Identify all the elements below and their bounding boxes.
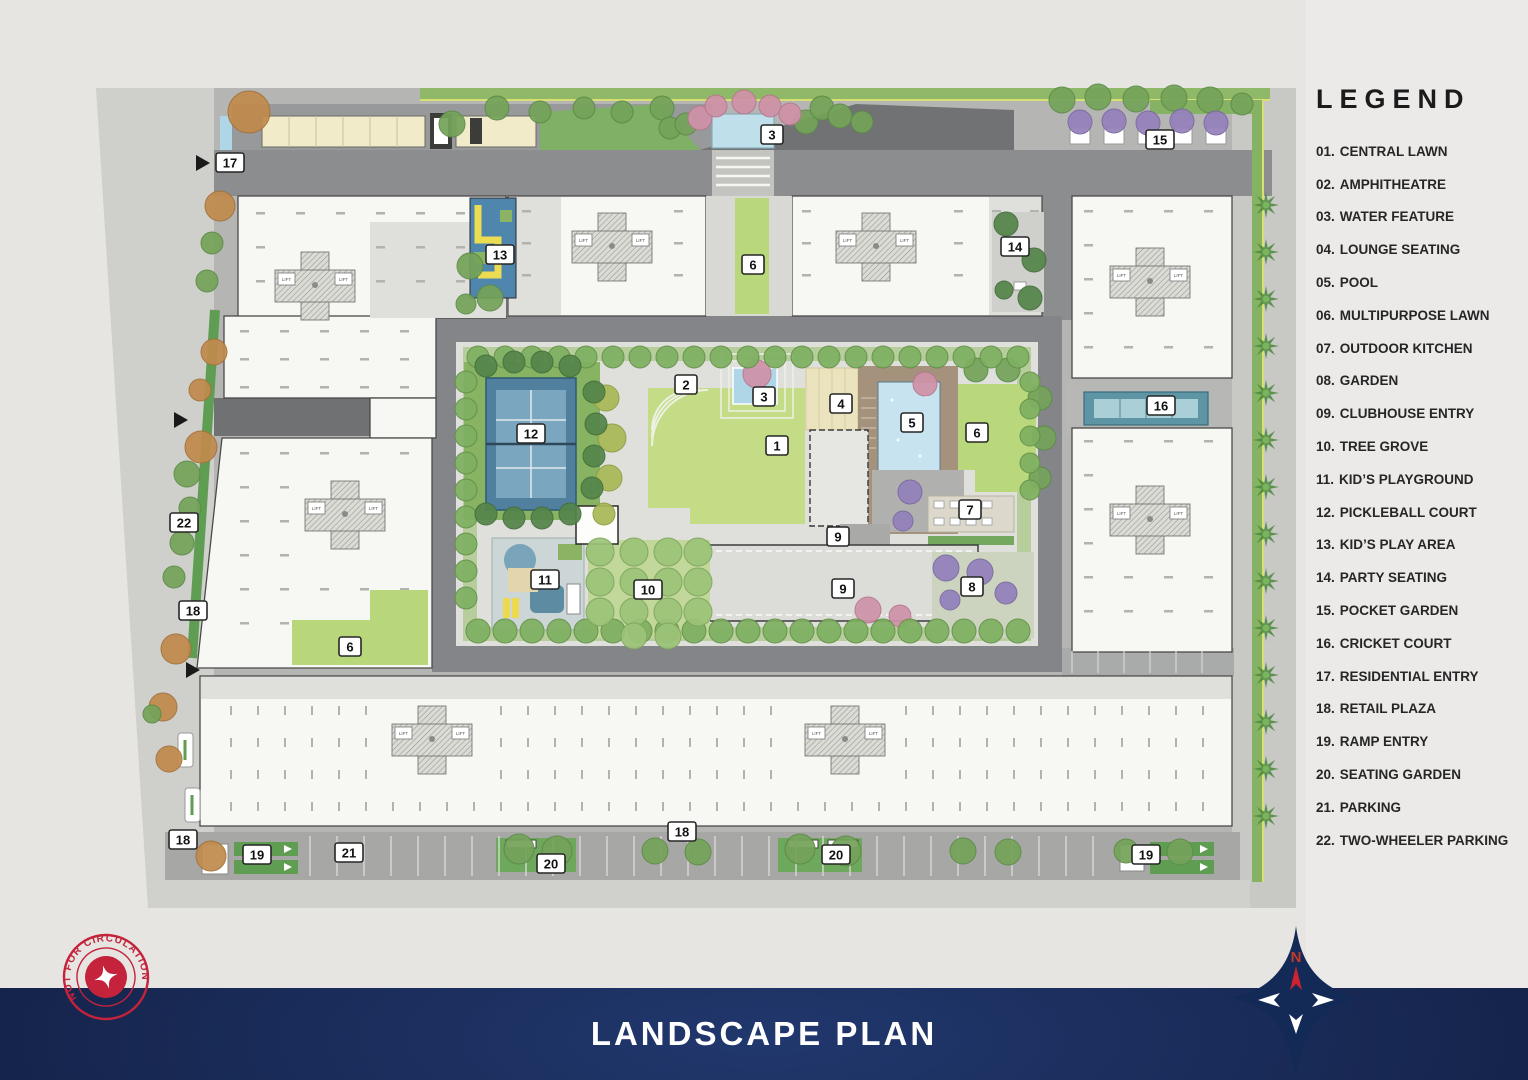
unit-mark <box>743 738 745 747</box>
plan-marker-18: 18 <box>169 830 197 849</box>
hedge-tree-icon <box>1020 426 1040 446</box>
plan-marker-21: 21 <box>335 843 363 862</box>
green-tree-icon <box>995 839 1021 865</box>
playground-green <box>558 544 582 560</box>
legend-item-number: 21. <box>1316 800 1335 815</box>
unit-mark <box>1175 802 1177 811</box>
orange-tree-icon <box>161 634 191 664</box>
unit-mark <box>311 706 313 715</box>
unit-mark <box>360 452 369 455</box>
legend-item-number: 15. <box>1316 603 1335 618</box>
pink-tree-icon <box>779 103 801 125</box>
playground-bar-2 <box>512 598 519 618</box>
unit-mark <box>280 588 289 591</box>
clubhouse-upper <box>810 430 868 526</box>
svg-text:20: 20 <box>544 857 558 872</box>
dark-tree-icon <box>475 355 497 377</box>
hedge-tree-icon <box>817 619 841 643</box>
unit-mark <box>522 274 531 277</box>
unit-mark <box>959 738 961 747</box>
unit-mark <box>743 706 745 715</box>
unit-mark <box>1124 440 1133 443</box>
pink-tree-icon <box>913 372 937 396</box>
unit-mark <box>320 588 329 591</box>
unit-mark <box>400 330 409 333</box>
hedge-tree-icon <box>1020 480 1040 500</box>
unit-mark <box>1204 210 1213 213</box>
palm-tree-center <box>1263 249 1270 256</box>
unit-mark <box>311 802 313 811</box>
bottom-sidewalk <box>150 880 1250 908</box>
unit-mark <box>416 246 425 249</box>
dark-tree-icon <box>995 281 1013 299</box>
light-tree-icon <box>586 568 614 596</box>
svg-text:19: 19 <box>250 848 264 863</box>
unit-mark <box>986 738 988 747</box>
unit-mark <box>1067 802 1069 811</box>
unit-mark <box>959 706 961 715</box>
svg-text:6: 6 <box>973 426 980 441</box>
unit-mark <box>376 246 385 249</box>
green-tree-icon <box>174 461 200 487</box>
unit-mark <box>240 622 249 625</box>
unit-mark <box>1121 738 1123 747</box>
unit-mark <box>743 770 745 779</box>
unit-mark <box>320 358 329 361</box>
orange-tree-icon <box>205 191 235 221</box>
legend-item: 21.PARKING <box>1316 791 1521 824</box>
unit-mark <box>230 802 232 811</box>
legend-item-label: RETAIL PLAZA <box>1340 701 1436 716</box>
unit-mark <box>296 212 305 215</box>
plan-marker-2: 2 <box>675 375 697 394</box>
unit-mark <box>1204 440 1213 443</box>
compass-north-label: N <box>1291 949 1302 966</box>
dark-tree-icon <box>475 503 497 525</box>
plan-marker-8: 8 <box>961 577 983 596</box>
legend-item-number: 11. <box>1316 472 1334 487</box>
kids-play-green <box>500 210 512 222</box>
green-tree-icon <box>1049 87 1075 113</box>
plan-marker-18: 18 <box>179 601 207 620</box>
unit-mark <box>256 246 265 249</box>
hedge-tree-icon <box>872 346 894 368</box>
pink-tree-icon <box>705 95 727 117</box>
unit-mark <box>1202 706 1204 715</box>
hedge-tree-icon <box>898 619 922 643</box>
svg-text:16: 16 <box>1154 399 1168 414</box>
unit-mark <box>365 706 367 715</box>
unit-mark <box>1040 770 1042 779</box>
unit-mark <box>608 706 610 715</box>
unit-mark <box>311 770 313 779</box>
green-tree-icon <box>163 566 185 588</box>
unit-mark <box>522 210 531 213</box>
hedge-tree-icon <box>710 346 732 368</box>
unit-mark <box>240 386 249 389</box>
green-tree-icon <box>201 232 223 254</box>
landscape-plan-page: { "footer": { "title": "LANDSCAPE PLAN" … <box>0 0 1528 1080</box>
green-tree-icon <box>143 705 161 723</box>
unit-mark <box>400 452 409 455</box>
unit-mark <box>392 802 394 811</box>
unit-mark <box>1148 738 1150 747</box>
plan-marker-12: 12 <box>517 424 545 443</box>
legend-item-number: 02. <box>1316 177 1335 192</box>
unit-mark <box>336 212 345 215</box>
legend-item: 02.AMPHITHEATRE <box>1316 168 1521 201</box>
dark-tree-icon <box>503 351 525 373</box>
hedge-tree-icon <box>736 619 760 643</box>
unit-mark <box>257 770 259 779</box>
unit-mark <box>527 802 529 811</box>
plan-marker-4: 4 <box>830 394 852 413</box>
palm-tree-center <box>1263 202 1270 209</box>
palm-tree-center <box>1263 719 1270 726</box>
light-tree-icon <box>586 598 614 626</box>
plan-marker-17: 17 <box>216 153 244 172</box>
dark-tree-icon <box>581 477 603 499</box>
unit-mark <box>280 520 289 523</box>
unit-mark <box>959 770 961 779</box>
unit-mark <box>770 770 772 779</box>
hedge-tree-icon <box>683 346 705 368</box>
hedge-tree-icon <box>455 560 477 582</box>
unit-mark <box>802 242 811 245</box>
unit-mark <box>280 386 289 389</box>
plan-marker-14: 14 <box>1001 237 1029 256</box>
unit-mark <box>770 802 772 811</box>
dark-tree-icon <box>503 507 525 529</box>
svg-text:6: 6 <box>346 640 353 655</box>
unit-mark <box>446 802 448 811</box>
unit-mark <box>500 706 502 715</box>
purple-tree-icon <box>995 582 1017 604</box>
hedge-tree-icon <box>1006 619 1030 643</box>
light-tree-icon <box>586 538 614 566</box>
hedge-tree-icon <box>952 619 976 643</box>
plan-marker-18: 18 <box>668 822 696 841</box>
unit-mark <box>932 738 934 747</box>
unit-mark <box>581 706 583 715</box>
unit-mark <box>400 358 409 361</box>
light-tree-icon <box>620 538 648 566</box>
light-tree-icon <box>684 568 712 596</box>
lift-label: LIFT <box>1117 511 1127 516</box>
unit-mark <box>905 706 907 715</box>
lift-label: LIFT <box>579 238 589 243</box>
unit-mark <box>716 738 718 747</box>
playground-bench <box>567 584 580 614</box>
plan-marker-16: 16 <box>1147 396 1175 415</box>
svg-text:11: 11 <box>538 573 552 588</box>
svg-text:8: 8 <box>968 580 975 595</box>
unit-mark <box>635 770 637 779</box>
building-filler <box>370 398 436 438</box>
unit-mark <box>1202 802 1204 811</box>
unit-mark <box>608 802 610 811</box>
unit-mark <box>770 706 772 715</box>
unit-mark <box>338 706 340 715</box>
unit-mark <box>554 770 556 779</box>
lift-label: LIFT <box>812 731 822 736</box>
plan-marker-22: 22 <box>170 513 198 532</box>
hedge-tree-icon <box>871 619 895 643</box>
legend-item-label: LOUNGE SEATING <box>1340 242 1461 257</box>
unit-mark <box>1124 210 1133 213</box>
hedge-tree-icon <box>925 619 949 643</box>
palm-tree-center <box>1263 390 1270 397</box>
green-tree-icon <box>439 111 465 137</box>
svg-text:13: 13 <box>493 248 507 263</box>
legend-item: 05.POOL <box>1316 266 1521 299</box>
unit-mark <box>1164 210 1173 213</box>
unit-mark <box>716 770 718 779</box>
hedge-tree-icon <box>520 619 544 643</box>
legend-item-number: 10. <box>1316 439 1335 454</box>
legend-panel: LEGEND 01.CENTRAL LAWN02.AMPHITHEATRE03.… <box>1316 84 1521 857</box>
legend-item: 18.RETAIL PLAZA <box>1316 693 1521 726</box>
legend-item-number: 04. <box>1316 242 1335 257</box>
svg-text:15: 15 <box>1153 133 1167 148</box>
building-south-band <box>201 677 1231 699</box>
unit-mark <box>1148 802 1150 811</box>
unit-mark <box>230 770 232 779</box>
legend-item-label: RESIDENTIAL ENTRY <box>1340 669 1479 684</box>
green-tree-icon <box>851 111 873 133</box>
unit-mark <box>240 358 249 361</box>
legend-item-label: AMPHITHEATRE <box>1340 177 1446 192</box>
unit-mark <box>986 770 988 779</box>
hedge-tree-icon <box>629 346 651 368</box>
legend-item-label: RAMP ENTRY <box>1340 734 1429 749</box>
orange-tree-icon <box>196 841 226 871</box>
retail-kiosk-dark-2 <box>470 118 482 144</box>
unit-mark <box>1175 706 1177 715</box>
plan-marker-6: 6 <box>339 637 361 656</box>
legend-item-number: 16. <box>1316 636 1335 651</box>
unit-mark <box>1204 610 1213 613</box>
unit-mark <box>662 738 664 747</box>
plan-marker-10: 10 <box>634 580 662 599</box>
green-tree-icon <box>650 96 674 120</box>
hedge-tree-icon <box>455 371 477 393</box>
unit-mark <box>1040 706 1042 715</box>
unit-mark <box>554 738 556 747</box>
legend-item-number: 06. <box>1316 308 1335 323</box>
hedge-tree-icon <box>1020 453 1040 473</box>
unit-mark <box>1013 706 1015 715</box>
unit-mark <box>360 386 369 389</box>
unit-mark <box>1084 440 1093 443</box>
green-tree-icon <box>1161 85 1187 111</box>
legend-item: 08.GARDEN <box>1316 365 1521 398</box>
palm-tree-center <box>1263 672 1270 679</box>
plan-marker-6: 6 <box>966 423 988 442</box>
green-tree-icon <box>685 839 711 865</box>
lift-label: LIFT <box>456 731 466 736</box>
unit-mark <box>365 802 367 811</box>
plan-marker-3: 3 <box>753 387 775 406</box>
unit-mark <box>376 212 385 215</box>
svg-text:18: 18 <box>186 604 200 619</box>
svg-text:5: 5 <box>908 416 915 431</box>
unit-mark <box>635 802 637 811</box>
plan-marker-11: 11 <box>531 570 559 589</box>
unit-mark <box>689 802 691 811</box>
unit-mark <box>280 330 289 333</box>
plan-marker-19: 19 <box>1132 845 1160 864</box>
purple-tree-icon <box>933 555 959 581</box>
legend-item-number: 08. <box>1316 373 1335 388</box>
svg-text:18: 18 <box>176 833 190 848</box>
legend-item-label: KID’S PLAYGROUND <box>1339 472 1474 487</box>
green-tree-icon <box>1231 93 1253 115</box>
unit-mark <box>716 706 718 715</box>
legend-item: 13.KID’S PLAY AREA <box>1316 529 1521 562</box>
unit-mark <box>257 802 259 811</box>
unit-mark <box>1148 770 1150 779</box>
unit-mark <box>419 802 421 811</box>
unit-mark <box>608 738 610 747</box>
legend-item-number: 03. <box>1316 209 1335 224</box>
unit-mark <box>1121 770 1123 779</box>
svg-text:1: 1 <box>773 439 780 454</box>
hedge-tree-icon <box>455 506 477 528</box>
unit-mark <box>1121 802 1123 811</box>
legend-item-number: 20. <box>1316 767 1335 782</box>
svg-text:2: 2 <box>682 378 689 393</box>
unit-mark <box>1124 610 1133 613</box>
legend-item-label: POOL <box>1340 275 1378 290</box>
palm-tree-center <box>1263 484 1270 491</box>
unit-mark <box>320 330 329 333</box>
legend-item: 20.SEATING GARDEN <box>1316 758 1521 791</box>
green-tree-icon <box>642 838 668 864</box>
unit-mark <box>1094 738 1096 747</box>
purple-tree-icon <box>893 511 913 531</box>
hedge-tree-icon <box>1020 372 1040 392</box>
unit-mark <box>527 706 529 715</box>
legend-item-number: 05. <box>1316 275 1335 290</box>
dark-tree-icon <box>994 212 1018 236</box>
hedge-tree-icon <box>791 346 813 368</box>
unit-mark <box>256 280 265 283</box>
legend-item-label: KID’S PLAY AREA <box>1340 537 1456 552</box>
unit-mark <box>954 242 963 245</box>
unit-mark <box>635 706 637 715</box>
unit-mark <box>416 212 425 215</box>
unit-mark <box>905 770 907 779</box>
orange-tree-icon <box>228 91 270 133</box>
legend-item: 06.MULTIPURPOSE LAWN <box>1316 299 1521 332</box>
plan-marker-3: 3 <box>761 125 783 144</box>
unit-mark <box>320 386 329 389</box>
olive-tree-icon <box>593 503 615 525</box>
unit-mark <box>338 802 340 811</box>
legend-item-number: 12. <box>1316 505 1335 520</box>
hedge-tree-icon <box>455 587 477 609</box>
unit-mark <box>986 706 988 715</box>
unit-mark <box>770 738 772 747</box>
unit-mark <box>954 210 963 213</box>
plan-marker-1: 1 <box>766 436 788 455</box>
unit-mark <box>662 802 664 811</box>
unit-mark <box>1094 706 1096 715</box>
unit-mark <box>689 706 691 715</box>
unit-mark <box>581 770 583 779</box>
playground-bar <box>503 598 510 618</box>
purple-tree-icon <box>898 480 922 504</box>
unit-mark <box>376 280 385 283</box>
lift-label: LIFT <box>1174 273 1184 278</box>
orange-tree-icon <box>156 746 182 772</box>
legend-title: LEGEND <box>1316 84 1521 115</box>
unit-mark <box>1084 312 1093 315</box>
unit-mark <box>500 738 502 747</box>
unit-mark <box>360 588 369 591</box>
unit-mark <box>674 242 683 245</box>
light-tree-icon <box>684 598 712 626</box>
unit-mark <box>851 802 853 811</box>
unit-mark <box>674 274 683 277</box>
green-tree-icon <box>950 838 976 864</box>
hedge-tree-icon <box>790 619 814 643</box>
hedge-tree-icon <box>547 619 571 643</box>
building-northwest-lower <box>224 316 436 398</box>
hedge-tree-icon <box>455 533 477 555</box>
unit-mark <box>1084 508 1093 511</box>
legend-item: 12.PICKLEBALL COURT <box>1316 496 1521 529</box>
legend-item-number: 13. <box>1316 537 1335 552</box>
legend-item-number: 14. <box>1316 570 1335 585</box>
unit-mark <box>689 770 691 779</box>
green-tree-icon <box>485 96 509 120</box>
lift-label: LIFT <box>339 277 349 282</box>
unit-mark <box>257 706 259 715</box>
green-tree-icon <box>611 101 633 123</box>
svg-text:17: 17 <box>223 156 237 171</box>
green-tree-icon <box>170 531 194 555</box>
lift-label: LIFT <box>1117 273 1127 278</box>
landscape-plan-drawing: LIFTLIFTLIFTLIFTLIFTLIFTLIFTLIFTLIFTLIFT… <box>0 0 1528 1080</box>
west-entry-drive <box>214 398 372 436</box>
dark-tree-icon <box>559 503 581 525</box>
unit-mark <box>1067 770 1069 779</box>
plan-marker-20: 20 <box>822 845 850 864</box>
svg-text:20: 20 <box>829 848 843 863</box>
dark-tree-icon <box>559 355 581 377</box>
orange-tree-icon <box>185 431 217 463</box>
hedge-tree-icon <box>953 346 975 368</box>
legend-item-label: OUTDOOR KITCHEN <box>1340 341 1473 356</box>
legend-list: 01.CENTRAL LAWN02.AMPHITHEATRE03.WATER F… <box>1316 135 1521 857</box>
legend-item-label: POCKET GARDEN <box>1340 603 1459 618</box>
unit-mark <box>554 802 556 811</box>
hedge-tree-icon <box>980 346 1002 368</box>
unit-mark <box>932 770 934 779</box>
svg-text:12: 12 <box>524 427 538 442</box>
unit-mark <box>365 738 367 747</box>
svg-text:7: 7 <box>966 503 973 518</box>
legend-item-number: 19. <box>1316 734 1335 749</box>
unit-mark <box>338 770 340 779</box>
legend-item-label: GARDEN <box>1340 373 1399 388</box>
plan-marker-5: 5 <box>901 413 923 432</box>
hedge-tree-icon <box>763 619 787 643</box>
unit-mark <box>473 802 475 811</box>
unit-mark <box>1175 738 1177 747</box>
